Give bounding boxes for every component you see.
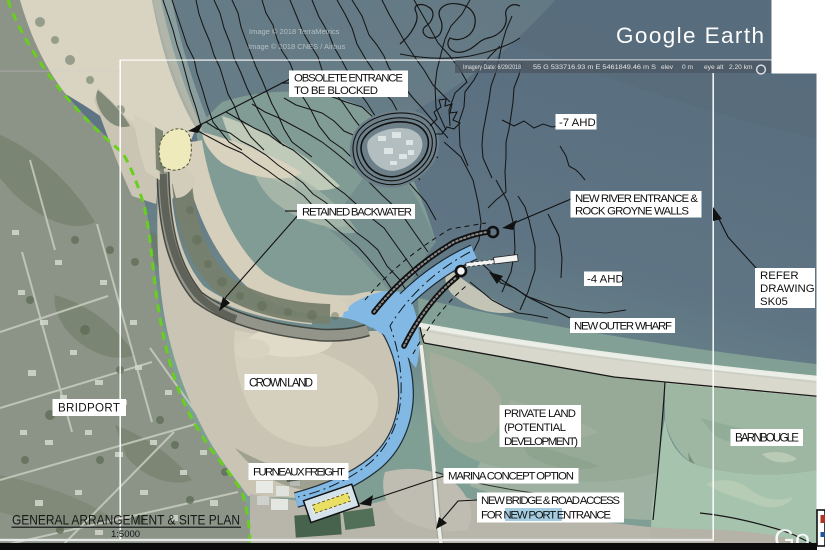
svg-text:SK05: SK05 — [760, 296, 788, 308]
svg-text:Image © 2018 TerraMetrics: Image © 2018 TerraMetrics — [249, 27, 340, 36]
svg-text:CROWN LAND: CROWN LAND — [249, 377, 313, 390]
svg-text:BRIDPORT: BRIDPORT — [58, 402, 120, 415]
svg-text:REFER: REFER — [760, 270, 799, 282]
svg-text:NEW BRIDGE & ROAD ACCESS: NEW BRIDGE & ROAD ACCESS — [481, 495, 620, 507]
svg-text:RETAINED BACKWATER: RETAINED BACKWATER — [302, 207, 412, 219]
svg-text:Google Earth: Google Earth — [616, 23, 765, 48]
svg-text:2.20 km: 2.20 km — [729, 64, 753, 71]
svg-text:OBSOLETE ENTRANCE: OBSOLETE ENTRANCE — [294, 73, 403, 85]
svg-text:NEW RIVER ENTRANCE &: NEW RIVER ENTRANCE & — [575, 193, 698, 205]
svg-text:1:5000: 1:5000 — [111, 529, 140, 540]
svg-text:NEW OUTER WHARF: NEW OUTER WHARF — [574, 321, 672, 333]
svg-text:-7 AHD: -7 AHD — [559, 117, 596, 129]
svg-text:ROCK GROYNE WALLS: ROCK GROYNE WALLS — [575, 206, 689, 218]
svg-text:elev: elev — [661, 64, 674, 71]
svg-text:PRIVATE LAND: PRIVATE LAND — [504, 408, 576, 420]
svg-text:FOR NEW PORT ENTRANCE: FOR NEW PORT ENTRANCE — [481, 510, 611, 522]
svg-text:Image © 2018 CNES / Airbus: Image © 2018 CNES / Airbus — [248, 42, 345, 51]
svg-text:MARINA CONCEPT OPTION: MARINA CONCEPT OPTION — [448, 471, 574, 483]
svg-text:DRAWING: DRAWING — [760, 283, 815, 295]
svg-text:BARNBOUGLE: BARNBOUGLE — [735, 432, 799, 445]
svg-text:eye alt: eye alt — [704, 64, 724, 71]
svg-text:0 m: 0 m — [682, 64, 693, 71]
svg-text:Imagery Date: 6/29/2018: Imagery Date: 6/29/2018 — [463, 64, 521, 71]
svg-text:55 G 533716.93 m E 5461849.46: 55 G 533716.93 m E 5461849.46 m S — [533, 64, 657, 71]
svg-text:DEVELOPMENT): DEVELOPMENT) — [504, 436, 578, 448]
svg-text:GENERAL ARRANGEMENT & SITE PLA: GENERAL ARRANGEMENT & SITE PLAN — [12, 512, 240, 528]
svg-text:-4 AHD: -4 AHD — [587, 274, 624, 286]
svg-text:FURNEAUX FREIGHT: FURNEAUX FREIGHT — [253, 467, 345, 479]
svg-text:(POTENTIAL: (POTENTIAL — [504, 422, 566, 434]
svg-text:TO BE BLOCKED: TO BE BLOCKED — [294, 85, 378, 97]
